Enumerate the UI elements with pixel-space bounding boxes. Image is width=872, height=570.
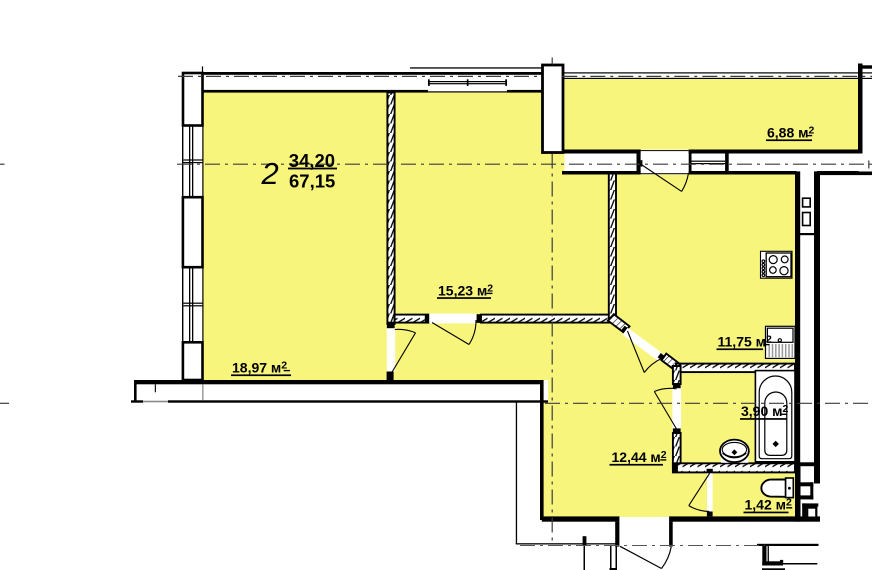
svg-text:6,88 м2: 6,88 м2 <box>767 124 815 140</box>
svg-text:67,15: 67,15 <box>289 171 335 192</box>
svg-text:3,90 м2: 3,90 м2 <box>741 403 789 419</box>
svg-text:1,42 м2: 1,42 м2 <box>745 497 793 513</box>
svg-text:15,23 м2: 15,23 м2 <box>438 282 493 298</box>
svg-text:12,44 м2: 12,44 м2 <box>612 449 667 465</box>
svg-text:2: 2 <box>261 156 279 191</box>
svg-text:18,97 м2: 18,97 м2 <box>232 360 287 376</box>
svg-text:11,75 м2: 11,75 м2 <box>718 334 773 350</box>
